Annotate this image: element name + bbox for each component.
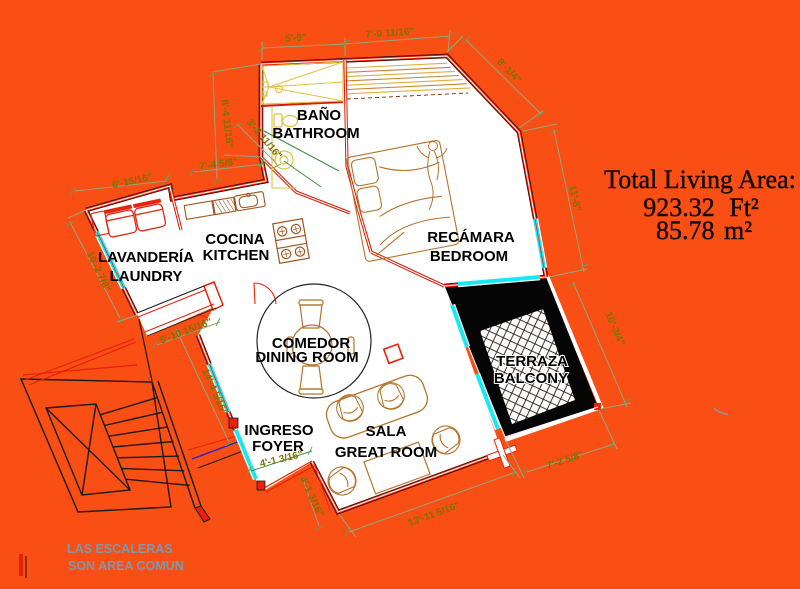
svg-text:RECÁMARA: RECÁMARA xyxy=(427,229,515,246)
svg-text:BALCONY: BALCONY xyxy=(494,370,568,387)
svg-text:BEDROOM: BEDROOM xyxy=(430,248,508,265)
svg-text:BAÑO: BAÑO xyxy=(297,106,341,124)
svg-text:5'-9": 5'-9" xyxy=(285,32,307,44)
svg-text:LAUNDRY: LAUNDRY xyxy=(110,268,183,285)
svg-text:KITCHEN: KITCHEN xyxy=(203,247,270,264)
svg-text:LAVANDERÍA: LAVANDERÍA xyxy=(98,249,194,266)
svg-text:85.78 m²: 85.78 m² xyxy=(656,216,752,245)
svg-text:COCINA: COCINA xyxy=(205,231,264,248)
svg-text:BATHROOM: BATHROOM xyxy=(272,125,359,142)
svg-text:Total Living Area:: Total Living Area: xyxy=(604,165,796,194)
svg-text:DINING ROOM: DINING ROOM xyxy=(255,349,358,366)
svg-text:INGRESO: INGRESO xyxy=(244,422,314,439)
svg-text:LAS ESCALERAS: LAS ESCALERAS xyxy=(67,542,173,556)
svg-text:SON AREA COMUN: SON AREA COMUN xyxy=(68,559,184,573)
svg-text:SALA: SALA xyxy=(366,423,407,440)
svg-text:GREAT ROOM: GREAT ROOM xyxy=(335,444,437,461)
svg-text:FOYER: FOYER xyxy=(252,438,304,455)
svg-text:TERRAZA: TERRAZA xyxy=(496,353,568,370)
